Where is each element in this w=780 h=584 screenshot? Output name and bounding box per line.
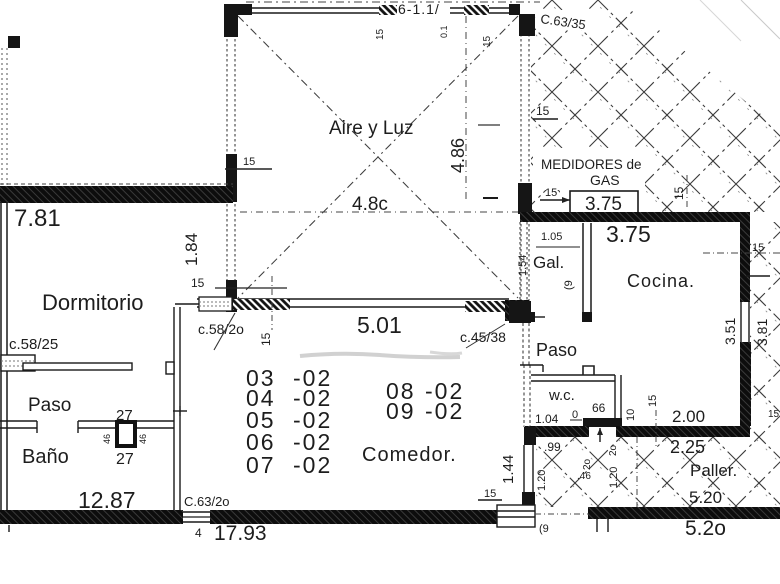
svg-text:3.81: 3.81 bbox=[754, 319, 770, 346]
svg-text:7.81: 7.81 bbox=[14, 205, 61, 232]
svg-text:c.58/2o: c.58/2o bbox=[198, 321, 244, 337]
svg-text:2.25: 2.25 bbox=[670, 437, 705, 457]
svg-text:4.8c: 4.8c bbox=[352, 194, 388, 215]
svg-text:1.20: 1.20 bbox=[608, 467, 620, 488]
svg-text:1.84: 1.84 bbox=[182, 233, 201, 266]
svg-text:Paller.: Paller. bbox=[690, 461, 737, 480]
svg-text:27: 27 bbox=[116, 407, 133, 424]
svg-text:27: 27 bbox=[116, 451, 134, 468]
svg-text:15: 15 bbox=[752, 242, 764, 254]
svg-text:4: 4 bbox=[195, 526, 202, 540]
svg-text:.46: .46 bbox=[577, 471, 591, 482]
svg-text:5.20: 5.20 bbox=[689, 488, 722, 507]
svg-text:GAS: GAS bbox=[590, 172, 620, 188]
svg-text:(9: (9 bbox=[563, 280, 575, 290]
svg-text:3.75: 3.75 bbox=[585, 194, 622, 215]
svg-text:15: 15 bbox=[484, 488, 496, 500]
svg-text:2o: 2o bbox=[608, 444, 619, 456]
svg-text:15: 15 bbox=[191, 276, 205, 290]
svg-text:w.c.: w.c. bbox=[548, 387, 575, 404]
svg-text:09-02: 09-02 bbox=[386, 398, 464, 424]
svg-text:1.54: 1.54 bbox=[517, 255, 529, 276]
svg-text:5.2o: 5.2o bbox=[685, 517, 726, 540]
svg-text:12.87: 12.87 bbox=[78, 487, 136, 513]
svg-text:1.04: 1.04 bbox=[535, 412, 559, 426]
svg-text:Aire y Luz: Aire y Luz bbox=[329, 118, 413, 139]
svg-text:46: 46 bbox=[102, 434, 112, 444]
svg-text:15: 15 bbox=[672, 186, 686, 200]
svg-text:17.93: 17.93 bbox=[214, 522, 267, 545]
svg-text:6-1.1/: 6-1.1/ bbox=[398, 1, 440, 17]
svg-text:Paso: Paso bbox=[536, 340, 577, 360]
svg-text:15: 15 bbox=[768, 409, 780, 420]
svg-text:0.1: 0.1 bbox=[439, 25, 449, 38]
svg-text:0: 0 bbox=[572, 409, 578, 421]
svg-text:46: 46 bbox=[138, 434, 148, 444]
svg-text:15: 15 bbox=[482, 35, 493, 47]
svg-text:4.86: 4.86 bbox=[448, 138, 468, 173]
svg-text:5.01: 5.01 bbox=[357, 312, 402, 338]
svg-text:15: 15 bbox=[375, 28, 386, 40]
svg-text:3.75: 3.75 bbox=[606, 221, 651, 247]
svg-text:Dormitorio: Dormitorio bbox=[42, 290, 143, 315]
svg-text:Comedor.: Comedor. bbox=[362, 444, 457, 466]
svg-text:.99: .99 bbox=[544, 440, 561, 454]
svg-text:MEDIDORES de: MEDIDORES de bbox=[541, 157, 642, 172]
svg-text:C.63/2o: C.63/2o bbox=[184, 494, 230, 509]
svg-text:15: 15 bbox=[647, 395, 659, 407]
svg-text:Cocina.: Cocina. bbox=[627, 271, 695, 291]
svg-text:2o: 2o bbox=[582, 458, 593, 470]
svg-text:c.58/25: c.58/25 bbox=[9, 336, 58, 353]
svg-text:Paso: Paso bbox=[28, 395, 71, 416]
svg-text:15: 15 bbox=[536, 104, 550, 118]
svg-text:2.00: 2.00 bbox=[672, 407, 705, 426]
svg-text:15: 15 bbox=[243, 156, 255, 168]
svg-text:15: 15 bbox=[545, 187, 557, 199]
svg-text:(9: (9 bbox=[539, 523, 549, 535]
svg-text:1.44: 1.44 bbox=[500, 455, 517, 484]
svg-text:15: 15 bbox=[259, 332, 273, 346]
svg-text:10: 10 bbox=[625, 409, 637, 421]
svg-text:1.20: 1.20 bbox=[536, 470, 548, 491]
svg-text:66: 66 bbox=[592, 401, 606, 415]
svg-text:Gal.: Gal. bbox=[533, 253, 564, 272]
svg-text:Baño: Baño bbox=[22, 446, 69, 468]
svg-text:3.51: 3.51 bbox=[722, 318, 738, 345]
svg-text:1.05: 1.05 bbox=[541, 231, 562, 243]
